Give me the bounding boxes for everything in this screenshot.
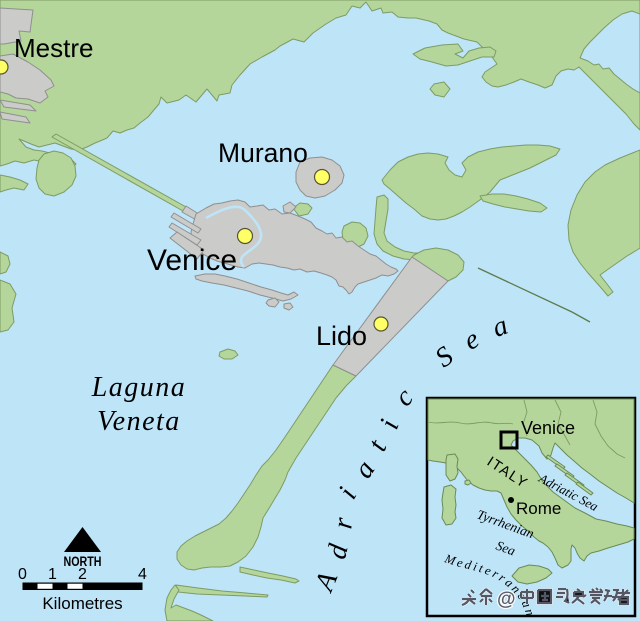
svg-text:2: 2 — [78, 566, 87, 583]
svg-text:Mestre: Mestre — [14, 33, 93, 63]
svg-text:Venice: Venice — [521, 418, 575, 438]
svg-text:4: 4 — [138, 566, 147, 583]
svg-text:0: 0 — [18, 566, 27, 583]
svg-text:Rome: Rome — [516, 499, 561, 518]
svg-text:Lido: Lido — [316, 321, 367, 351]
svg-text:Kilometres: Kilometres — [42, 594, 122, 613]
svg-text:Laguna: Laguna — [91, 372, 187, 403]
svg-text:Murano: Murano — [218, 138, 308, 168]
svg-text:@: @ — [497, 589, 516, 610]
svg-text:Veneta: Veneta — [97, 406, 181, 437]
svg-text:1: 1 — [48, 566, 57, 583]
svg-text:Venice: Venice — [147, 244, 237, 277]
